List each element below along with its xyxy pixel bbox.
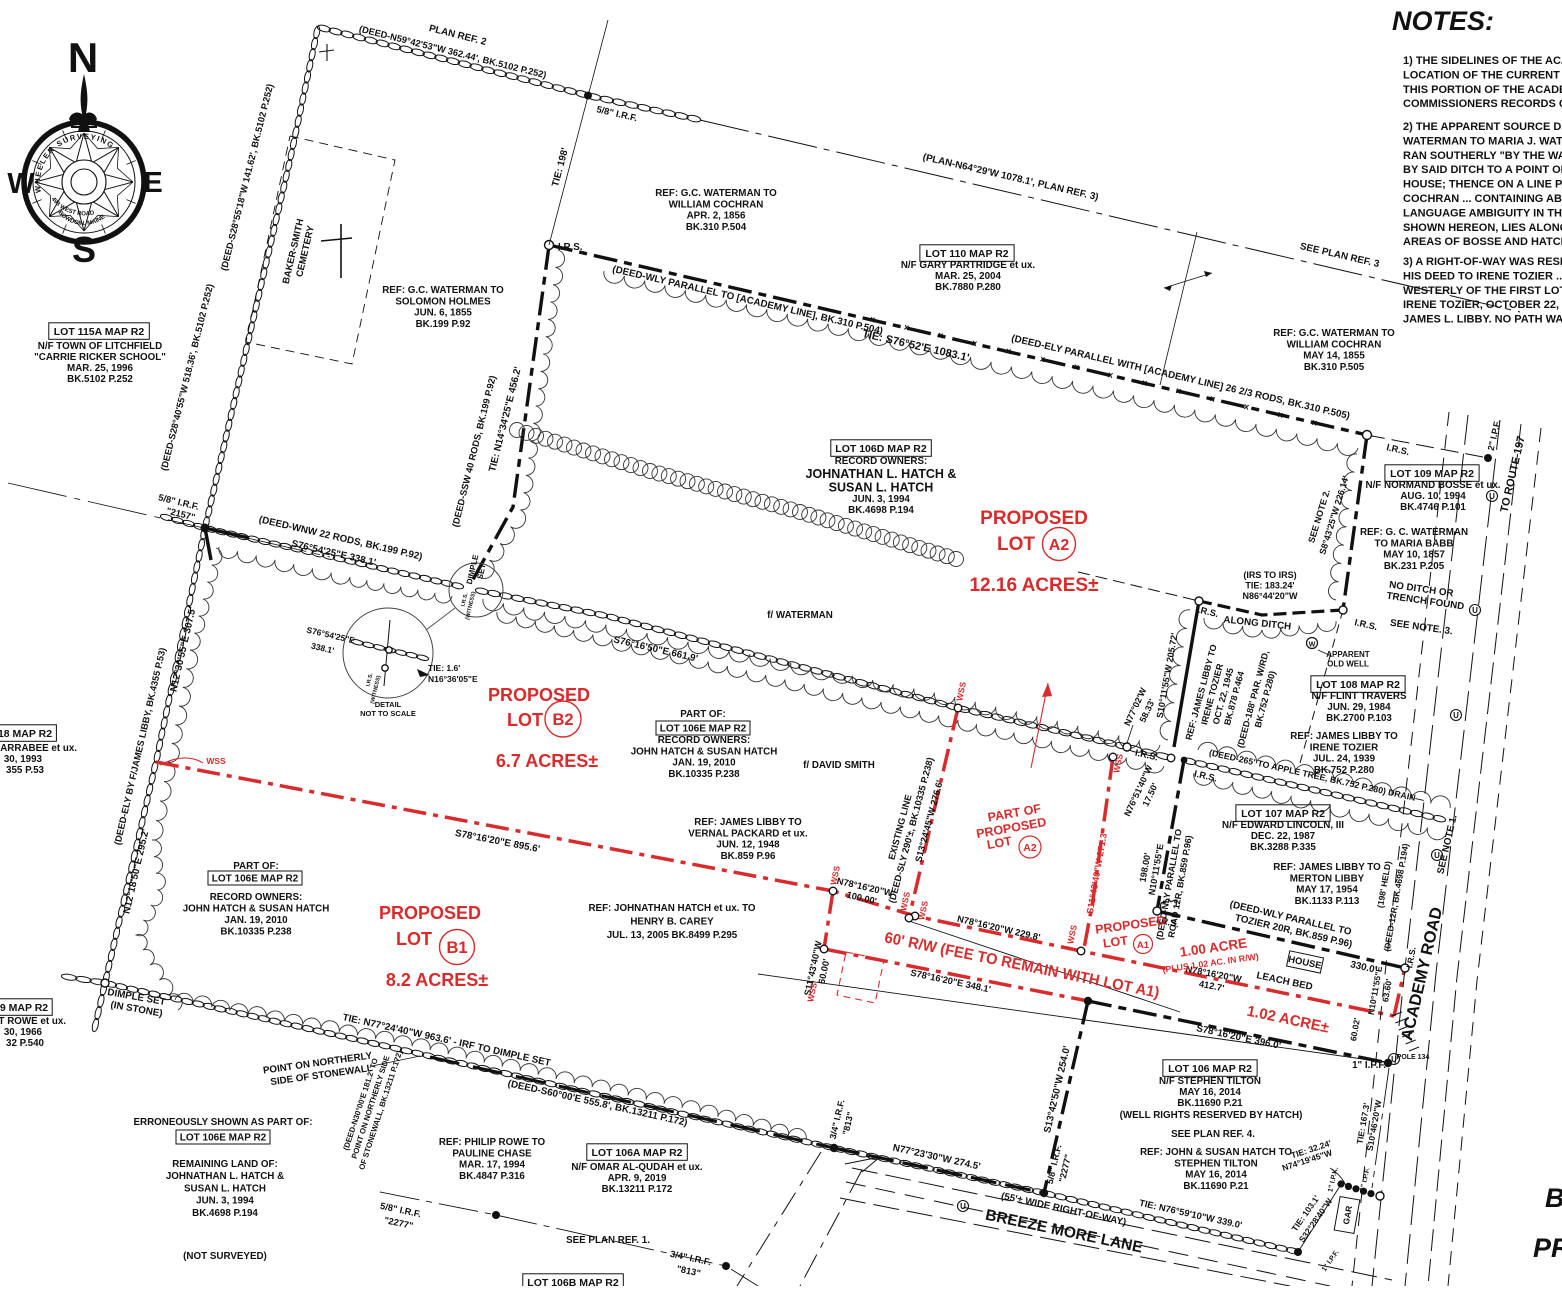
svg-text:IRENE TOZIER: IRENE TOZIER [1310, 742, 1378, 753]
svg-text:JOHN HATCH & SUSAN HATCH: JOHN HATCH & SUSAN HATCH [631, 746, 778, 757]
svg-text:N16°36'05"E: N16°36'05"E [428, 674, 478, 684]
svg-text:WILLIAM COCHRAN: WILLIAM COCHRAN [669, 199, 764, 210]
svg-text:JUN. 29, 1984: JUN. 29, 1984 [1327, 702, 1391, 713]
svg-text:STEPHEN TILTON: STEPHEN TILTON [1174, 1158, 1257, 1169]
svg-text:N/F TOWN OF LITCHFIELD: N/F TOWN OF LITCHFIELD [38, 341, 162, 352]
svg-text:DEC. 22, 1987: DEC. 22, 1987 [1251, 831, 1316, 842]
svg-text:LOT: LOT [507, 710, 543, 730]
svg-text:SOLOMON HOLMES: SOLOMON HOLMES [395, 296, 491, 307]
svg-text:RECORD OWNERS:: RECORD OWNERS: [210, 892, 303, 903]
svg-text:MAY 16, 2014: MAY 16, 2014 [1179, 1087, 1241, 1098]
svg-text:1) THE SIDELINES OF THE ACADEM: 1) THE SIDELINES OF THE ACADEMY ROAD WER… [1403, 55, 1562, 67]
svg-text:HIS DEED TO IRENE TOZIER ... S: HIS DEED TO IRENE TOZIER ... SAID RIGHT-… [1403, 270, 1562, 282]
svg-text:LOT: LOT [997, 534, 1035, 555]
svg-text:S: S [72, 229, 96, 270]
svg-text:(IRS TO IRS): (IRS TO IRS) [1243, 570, 1296, 580]
svg-text:BK.7880 P.280: BK.7880 P.280 [935, 282, 1001, 293]
svg-text:E: E [143, 167, 162, 199]
svg-text:MAY 17, 1954: MAY 17, 1954 [1296, 885, 1358, 896]
svg-text:REMAINING LAND OF:: REMAINING LAND OF: [172, 1159, 278, 1170]
svg-text:OLD WELL: OLD WELL [1327, 660, 1369, 669]
svg-text:N/F FLINT TRAVERS: N/F FLINT TRAVERS [1311, 691, 1407, 702]
svg-text:A2: A2 [1049, 537, 1070, 554]
svg-text:N/F STEPHEN TILTON: N/F STEPHEN TILTON [1159, 1076, 1261, 1087]
svg-text:LOT: LOT [396, 929, 432, 949]
svg-text:6.7 ACRES±: 6.7 ACRES± [496, 751, 598, 771]
svg-text:SHOWN HEREON, LIES ALONG THE R: SHOWN HEREON, LIES ALONG THE REMNANTS OF… [1403, 222, 1562, 234]
svg-text:N/F NORMAND BOSSE et ux.: N/F NORMAND BOSSE et ux. [1366, 480, 1501, 491]
svg-text:NOT TO SCALE: NOT TO SCALE [360, 709, 416, 718]
svg-text:N/F GARY PARTRIDGE et ux.: N/F GARY PARTRIDGE et ux. [901, 260, 1036, 271]
svg-text:JAN. 19, 2010: JAN. 19, 2010 [672, 758, 736, 769]
svg-text:LOT 106B MAP R2: LOT 106B MAP R2 [527, 1277, 619, 1286]
svg-text:(WELL RIGHTS RESERVED BY HATCH: (WELL RIGHTS RESERVED BY HATCH) [1120, 1110, 1303, 1121]
svg-text:REF: JOHN & SUSAN HATCH TO: REF: JOHN & SUSAN HATCH TO [1140, 1147, 1292, 1158]
svg-text:BK.310 P.505: BK.310 P.505 [1304, 362, 1365, 373]
svg-text:PROPOSED: PROPOSED [379, 903, 481, 923]
svg-text:BO: BO [1545, 1183, 1562, 1213]
svg-text:WSS: WSS [206, 756, 226, 766]
svg-text:PART OF:: PART OF: [680, 709, 726, 720]
svg-text:MAR. 17, 1994: MAR. 17, 1994 [459, 1160, 525, 1171]
svg-text:2) THE APPARENT SOURCE DEED TO: 2) THE APPARENT SOURCE DEED TO THIS PARC… [1403, 121, 1562, 133]
svg-text:3) A RIGHT-OF-WAY WAS RESERVED: 3) A RIGHT-OF-WAY WAS RESERVED BY JAMES … [1403, 256, 1562, 268]
svg-text:PROPOSED: PROPOSED [488, 685, 590, 705]
svg-text:BK.4746 P.101: BK.4746 P.101 [1400, 502, 1466, 513]
svg-text:BK.310 P.504: BK.310 P.504 [686, 222, 747, 233]
svg-text:32 P.540: 32 P.540 [6, 1038, 45, 1049]
svg-text:APR. 9, 2019: APR. 9, 2019 [608, 1173, 667, 1184]
svg-text:THIS PORTION OF THE ACADEMY RO: THIS PORTION OF THE ACADEMY ROAD WAS NOT… [1403, 84, 1562, 96]
svg-text:HENRY B. CAREY: HENRY B. CAREY [630, 917, 714, 928]
svg-text:W: W [7, 168, 35, 200]
svg-text:REF: JOHNATHAN HATCH et ux. TO: REF: JOHNATHAN HATCH et ux. TO [588, 903, 755, 914]
svg-text:BK.10335 P.238: BK.10335 P.238 [220, 927, 292, 938]
svg-text:AUG. 10, 1994: AUG. 10, 1994 [1400, 491, 1466, 502]
svg-text:JUN. 3, 1994: JUN. 3, 1994 [852, 494, 910, 505]
svg-text:BK.11690 P.21: BK.11690 P.21 [1183, 1181, 1249, 1192]
svg-text:IRENE TOZIER, OCTOBER 22, 1945: IRENE TOZIER, OCTOBER 22, 1945 AND WAS R… [1403, 299, 1562, 311]
svg-text:LOT 110 MAP R2: LOT 110 MAP R2 [925, 248, 1008, 260]
svg-text:W: W [1309, 641, 1316, 648]
svg-text:B2: B2 [552, 711, 573, 729]
svg-text:SEE PLAN REF. 1.: SEE PLAN REF. 1. [566, 1235, 650, 1246]
svg-text:WATERMAN TO MARIA J. WATERMAN,: WATERMAN TO MARIA J. WATERMAN, DESCRIBED… [1403, 135, 1562, 147]
svg-text:9 MAP R2: 9 MAP R2 [0, 1002, 48, 1014]
svg-text:LANGUAGE AMBIGUITY IN THE DEED: LANGUAGE AMBIGUITY IN THE DEED. THE WEST… [1403, 207, 1562, 219]
svg-text:8.2 ACRES±: 8.2 ACRES± [386, 970, 488, 990]
svg-text:JAMES L. LIBBY. NO PATH WAS E: JAMES L. LIBBY. NO PATH WAS EVER LOCATED… [1403, 314, 1562, 326]
svg-text:BK.10335 P.238: BK.10335 P.238 [668, 769, 740, 780]
svg-text:WESTERLY OF THE FIRST LOT CONV: WESTERLY OF THE FIRST LOT CONVEYED BY JA… [1403, 285, 1562, 297]
svg-text:LOT 108 MAP R2: LOT 108 MAP R2 [1316, 679, 1400, 691]
svg-text:PR: PR [1533, 1233, 1562, 1263]
svg-text:LOCATION OF THE CURRENT TRAVEL: LOCATION OF THE CURRENT TRAVELED WAY AND… [1403, 69, 1562, 81]
svg-text:COCHRAN ... CONTAINING ABOUT T: COCHRAN ... CONTAINING ABOUT TWELVE ACRE… [1403, 193, 1562, 205]
svg-text:BK.3288 P.335: BK.3288 P.335 [1250, 842, 1316, 853]
svg-text:MAR. 25, 2004: MAR. 25, 2004 [935, 271, 1001, 282]
svg-text:MERTON LIBBY: MERTON LIBBY [1290, 873, 1365, 884]
svg-text:APR. 2, 1856: APR. 2, 1856 [687, 211, 746, 222]
svg-text:LARRABEE et ux.: LARRABEE et ux. [0, 743, 77, 754]
svg-text:ERRONEOUSLY SHOWN AS PART OF:: ERRONEOUSLY SHOWN AS PART OF: [133, 1117, 312, 1128]
svg-text:REF: G.C. WATERMAN TO: REF: G.C. WATERMAN TO [382, 285, 504, 296]
svg-text:REF: JAMES LIBBY TO: REF: JAMES LIBBY TO [694, 817, 802, 828]
svg-text:NOTES:: NOTES: [1392, 6, 1494, 36]
svg-text:MAY 16, 2014: MAY 16, 2014 [1185, 1170, 1247, 1181]
svg-text:12.16 ACRES±: 12.16 ACRES± [969, 575, 1098, 596]
svg-text:REF: JAMES LIBBY TO: REF: JAMES LIBBY TO [1273, 862, 1381, 873]
svg-text:PROPOSED: PROPOSED [980, 508, 1088, 529]
svg-text:JUN. 12, 1948: JUN. 12, 1948 [716, 840, 780, 851]
svg-text:BK.11690 P.21: BK.11690 P.21 [1177, 1098, 1243, 1109]
svg-text:LOT 106A MAP R2: LOT 106A MAP R2 [591, 1147, 682, 1159]
svg-text:N/F EDWARD LINCOLN, III: N/F EDWARD LINCOLN, III [1222, 820, 1344, 831]
svg-text:N/F OMAR AL-QUDAH et ux.: N/F OMAR AL-QUDAH et ux. [571, 1162, 703, 1173]
svg-text:TIE: 183.24': TIE: 183.24' [1245, 581, 1294, 591]
svg-text:f/ WATERMAN: f/ WATERMAN [767, 610, 833, 621]
svg-text:POLE 134: POLE 134 [1397, 1054, 1430, 1061]
svg-text:JUN. 6, 1855: JUN. 6, 1855 [414, 308, 472, 319]
svg-text:I.R.S.: I.R.S. [558, 242, 583, 253]
svg-text:30, 1993: 30, 1993 [4, 754, 43, 765]
svg-text:MAY 14, 1855: MAY 14, 1855 [1303, 351, 1365, 362]
svg-text:U: U [1489, 492, 1495, 501]
svg-text:JAN. 19, 2010: JAN. 19, 2010 [224, 915, 288, 926]
svg-text:HOUSE; THENCE ON A LINE PARAL: HOUSE; THENCE ON A LINE PARALLEL WITH TH… [1403, 179, 1562, 191]
svg-text:MAY 10, 1857: MAY 10, 1857 [1383, 550, 1445, 561]
svg-text:RECORD OWNERS:: RECORD OWNERS: [835, 456, 928, 467]
svg-text:SUSAN L. HATCH: SUSAN L. HATCH [829, 481, 934, 495]
svg-text:355 P.53: 355 P.53 [6, 765, 45, 776]
svg-text:U: U [960, 1202, 966, 1211]
svg-text:BK.2700 P.103: BK.2700 P.103 [1326, 713, 1392, 724]
svg-text:DETAIL: DETAIL [375, 700, 402, 709]
svg-text:JUN. 3, 1994: JUN. 3, 1994 [196, 1196, 254, 1207]
svg-text:BK.859 P.96: BK.859 P.96 [721, 851, 776, 862]
svg-text:TIE: 1.6': TIE: 1.6' [428, 663, 460, 673]
svg-text:SEE PLAN REF. 4.: SEE PLAN REF. 4. [1171, 1129, 1255, 1140]
svg-text:APPARENT: APPARENT [1326, 650, 1370, 659]
svg-text:PART OF:: PART OF: [233, 861, 279, 872]
svg-text:JUL. 24, 1939: JUL. 24, 1939 [1313, 754, 1376, 765]
svg-text:18 MAP R2: 18 MAP R2 [0, 728, 52, 740]
svg-text:REF: G.C. WATERMAN TO: REF: G.C. WATERMAN TO [1273, 328, 1395, 339]
svg-text:BK.4847 P.316: BK.4847 P.316 [459, 1171, 525, 1182]
svg-text:JOHNATHAN L. HATCH &: JOHNATHAN L. HATCH & [806, 467, 957, 481]
svg-text:U: U [1472, 606, 1478, 615]
svg-text:T ROWE et ux.: T ROWE et ux. [0, 1016, 66, 1027]
svg-text:BY SAID DITCH TO A POINT OPPOS: BY SAID DITCH TO A POINT OPPOSITE THE NO… [1403, 164, 1562, 176]
svg-text:PAULINE CHASE: PAULINE CHASE [452, 1148, 532, 1159]
svg-text:LOT 106E MAP R2: LOT 106E MAP R2 [180, 1133, 267, 1144]
svg-text:LOT 106E MAP R2: LOT 106E MAP R2 [212, 874, 299, 885]
svg-text:REF: PHILIP ROWE TO: REF: PHILIP ROWE TO [439, 1137, 546, 1148]
svg-text:BK.13211 P.172: BK.13211 P.172 [602, 1184, 673, 1195]
svg-text:VERNAL PACKARD et ux.: VERNAL PACKARD et ux. [688, 828, 808, 839]
svg-text:N86°44'20"W: N86°44'20"W [1242, 591, 1298, 601]
svg-text:LOT 106E MAP R2: LOT 106E MAP R2 [660, 724, 747, 735]
svg-text:LOT 115A MAP R2: LOT 115A MAP R2 [54, 326, 145, 338]
svg-text:BK.231 P.205: BK.231 P.205 [1384, 561, 1445, 572]
svg-text:U: U [1453, 711, 1459, 720]
svg-text:SUSAN L. HATCH: SUSAN L. HATCH [184, 1183, 266, 1194]
svg-text:BK.1133 P.113: BK.1133 P.113 [1295, 896, 1360, 907]
svg-text:(NOT SURVEYED): (NOT SURVEYED) [183, 1251, 267, 1262]
svg-text:30, 1966: 30, 1966 [4, 1027, 43, 1038]
svg-text:MAR. 25, 1996: MAR. 25, 1996 [67, 363, 133, 374]
svg-text:"CARRIE RICKER SCHOOL": "CARRIE RICKER SCHOOL" [34, 352, 166, 363]
svg-text:REF: G. C. WATERMAN: REF: G. C. WATERMAN [1360, 527, 1468, 538]
svg-text:AREAS OF BOSSE AND HATCH.: AREAS OF BOSSE AND HATCH. [1403, 236, 1562, 248]
svg-text:COMMISSIONERS RECORDS OF RECOR: COMMISSIONERS RECORDS OF RECORD. [1403, 98, 1562, 110]
svg-text:JOHN HATCH & SUSAN HATCH: JOHN HATCH & SUSAN HATCH [183, 904, 330, 915]
svg-text:1" I.P.F.: 1" I.P.F. [1352, 1060, 1386, 1071]
svg-text:BK.4698 P.194: BK.4698 P.194 [192, 1208, 258, 1219]
svg-text:A1: A1 [1137, 940, 1150, 951]
svg-text:RECORD OWNERS:: RECORD OWNERS: [658, 735, 751, 746]
svg-text:RAN SOUTHERLY "BY THE WATERMAN: RAN SOUTHERLY "BY THE WATERMAN LINE" TO … [1403, 150, 1562, 162]
svg-text:REF: JAMES LIBBY TO: REF: JAMES LIBBY TO [1290, 731, 1398, 742]
svg-text:f/ DAVID SMITH: f/ DAVID SMITH [803, 760, 875, 771]
svg-text:A2: A2 [1023, 842, 1037, 854]
svg-text:JOHNATHAN L. HATCH &: JOHNATHAN L. HATCH & [166, 1171, 284, 1182]
svg-text:REF: G.C. WATERMAN TO: REF: G.C. WATERMAN TO [655, 188, 777, 199]
svg-text:BK.199 P.92: BK.199 P.92 [416, 319, 471, 330]
svg-text:BK.5102 P.252: BK.5102 P.252 [67, 374, 133, 385]
svg-text:BK.4698 P.194: BK.4698 P.194 [848, 505, 914, 516]
svg-text:JUL. 13, 2005 BK.8499 P.295: JUL. 13, 2005 BK.8499 P.295 [607, 930, 738, 941]
svg-text:LOT 107 MAP R2: LOT 107 MAP R2 [1241, 808, 1325, 820]
svg-text:N: N [68, 34, 98, 81]
svg-text:LOT 106 MAP R2: LOT 106 MAP R2 [1168, 1063, 1252, 1075]
svg-text:TO MARIA BABB: TO MARIA BABB [1375, 538, 1454, 549]
svg-text:LOT 106D MAP R2: LOT 106D MAP R2 [835, 443, 927, 455]
svg-text:LOT 109 MAP R2: LOT 109 MAP R2 [1390, 468, 1474, 480]
svg-text:WILLIAM COCHRAN: WILLIAM COCHRAN [1287, 339, 1382, 350]
svg-text:B1: B1 [446, 939, 467, 957]
